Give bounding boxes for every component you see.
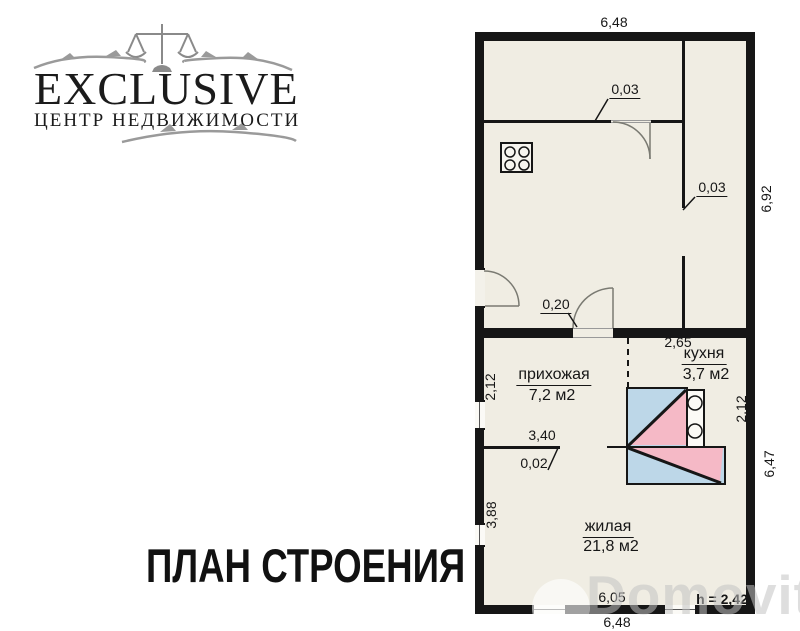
agency-brand: EXCLUSIVE bbox=[34, 62, 294, 115]
room-hallway-area: 7,2 м2 bbox=[529, 387, 576, 405]
agency-tagline: ЦЕНТР НЕДВИЖИМОСТИ bbox=[34, 110, 296, 132]
dim-main-height: 6,47 bbox=[761, 450, 777, 477]
dim-annex-height: 6,92 bbox=[758, 185, 774, 212]
kitchen-boundary-dashed bbox=[627, 338, 629, 388]
dim-left-lower: 3,88 bbox=[483, 501, 499, 528]
room-living-name: жилая bbox=[583, 518, 634, 538]
plan-caption: ПЛАН СТРОЕНИЯ bbox=[146, 538, 465, 593]
middle-wall bbox=[475, 328, 755, 338]
annex-partition-vertical-upper bbox=[682, 41, 685, 208]
room-hallway-name: прихожая bbox=[516, 366, 591, 386]
room-kitchen-name: кухня bbox=[682, 345, 727, 365]
floor-plan-page: EXCLUSIVE ЦЕНТР НЕДВИЖИМОСТИ ПЛАН СТРОЕН… bbox=[0, 0, 800, 631]
dim-top-width: 6,48 bbox=[600, 14, 627, 30]
annex-door-opening bbox=[611, 120, 651, 123]
dim-left-upper: 2,12 bbox=[482, 373, 498, 400]
dim-entry-opening: 0,20 bbox=[540, 296, 571, 314]
agency-logo: EXCLUSIVE ЦЕНТР НЕДВИЖИМОСТИ bbox=[20, 10, 320, 160]
exterior-door-opening bbox=[475, 268, 485, 308]
window-left-upper bbox=[475, 400, 485, 430]
room-living-area: 21,8 м2 bbox=[583, 538, 638, 556]
annex-partition-vertical-lower bbox=[682, 256, 685, 328]
dim-partition-b: 0,03 bbox=[696, 179, 727, 197]
room-kitchen-area: 3,7 м2 bbox=[683, 366, 730, 384]
dim-hall-partition: 0,02 bbox=[520, 455, 547, 471]
furnace-stub-wall bbox=[607, 446, 627, 448]
dim-partition-a: 0,03 bbox=[609, 81, 640, 99]
watermark-logo-circle bbox=[532, 579, 590, 631]
annex-partition-horizontal bbox=[484, 120, 682, 123]
dim-hall-wall: 3,40 bbox=[528, 427, 555, 443]
hallway-partition bbox=[484, 446, 560, 449]
dim-kitchen-depth: 2,12 bbox=[733, 395, 749, 422]
watermark-text: Domovita bbox=[586, 563, 800, 627]
entry-door-opening bbox=[573, 328, 613, 338]
